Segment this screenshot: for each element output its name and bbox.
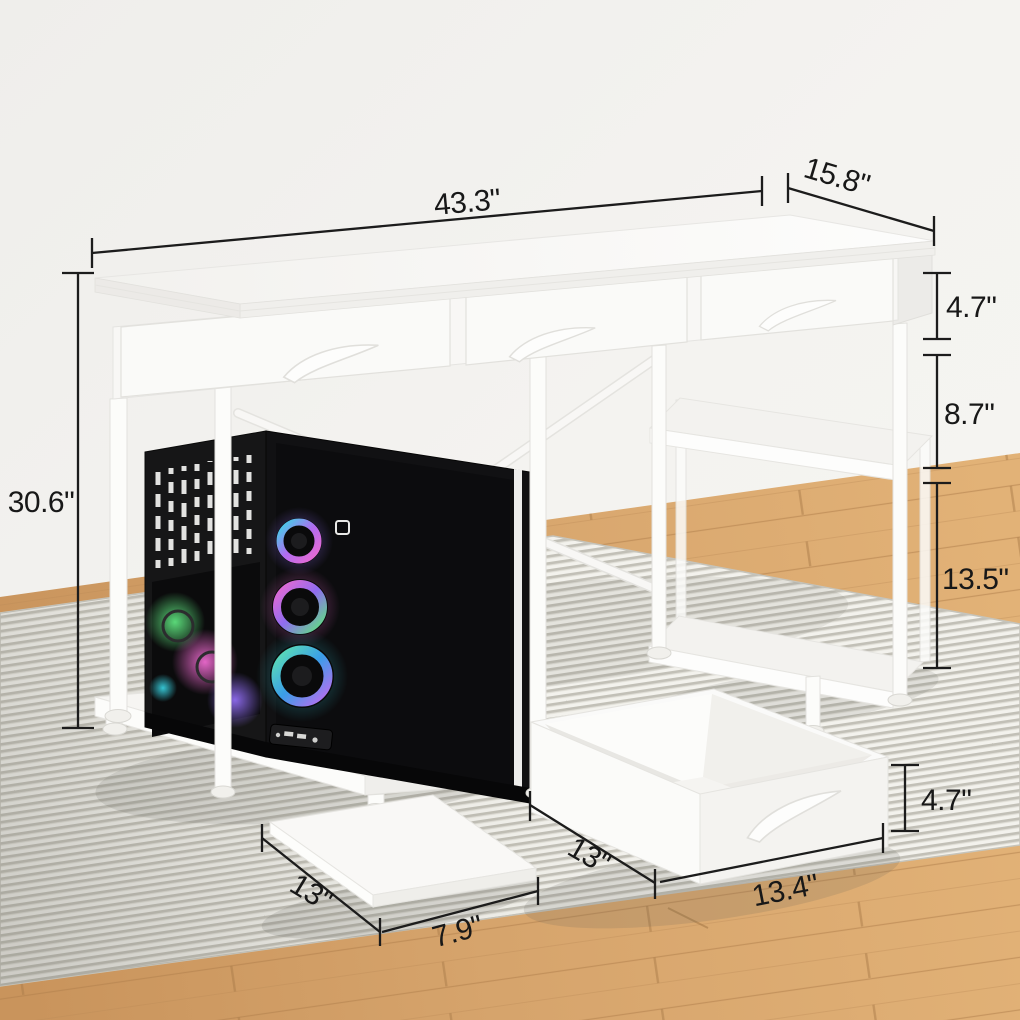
shelf-outer-leg [893, 323, 907, 698]
dim-upper-shelf-gap-label: 8.7" [944, 398, 994, 431]
dim-drawer-front-height-label: 4.7" [946, 291, 996, 324]
dim-drawer-box-height-label: 4.7" [921, 784, 971, 817]
pc-led-strip [514, 469, 522, 792]
dim-desk-width-label: 43.3" [433, 183, 502, 222]
product-diagram: 43.3" 15.8" 30.6" 4.7" 8.7" [0, 0, 1020, 1020]
dim-lower-shelf-gap-label: 13.5" [942, 563, 1009, 596]
front-left-leg [110, 398, 127, 713]
dim-desk-height-label: 30.6" [8, 486, 75, 519]
shelf-inner-leg [652, 345, 666, 651]
pc-gpu-window [145, 562, 263, 737]
back-left-leg [215, 369, 231, 790]
scene-canvas: 43.3" 15.8" 30.6" 4.7" 8.7" [0, 0, 1020, 1020]
